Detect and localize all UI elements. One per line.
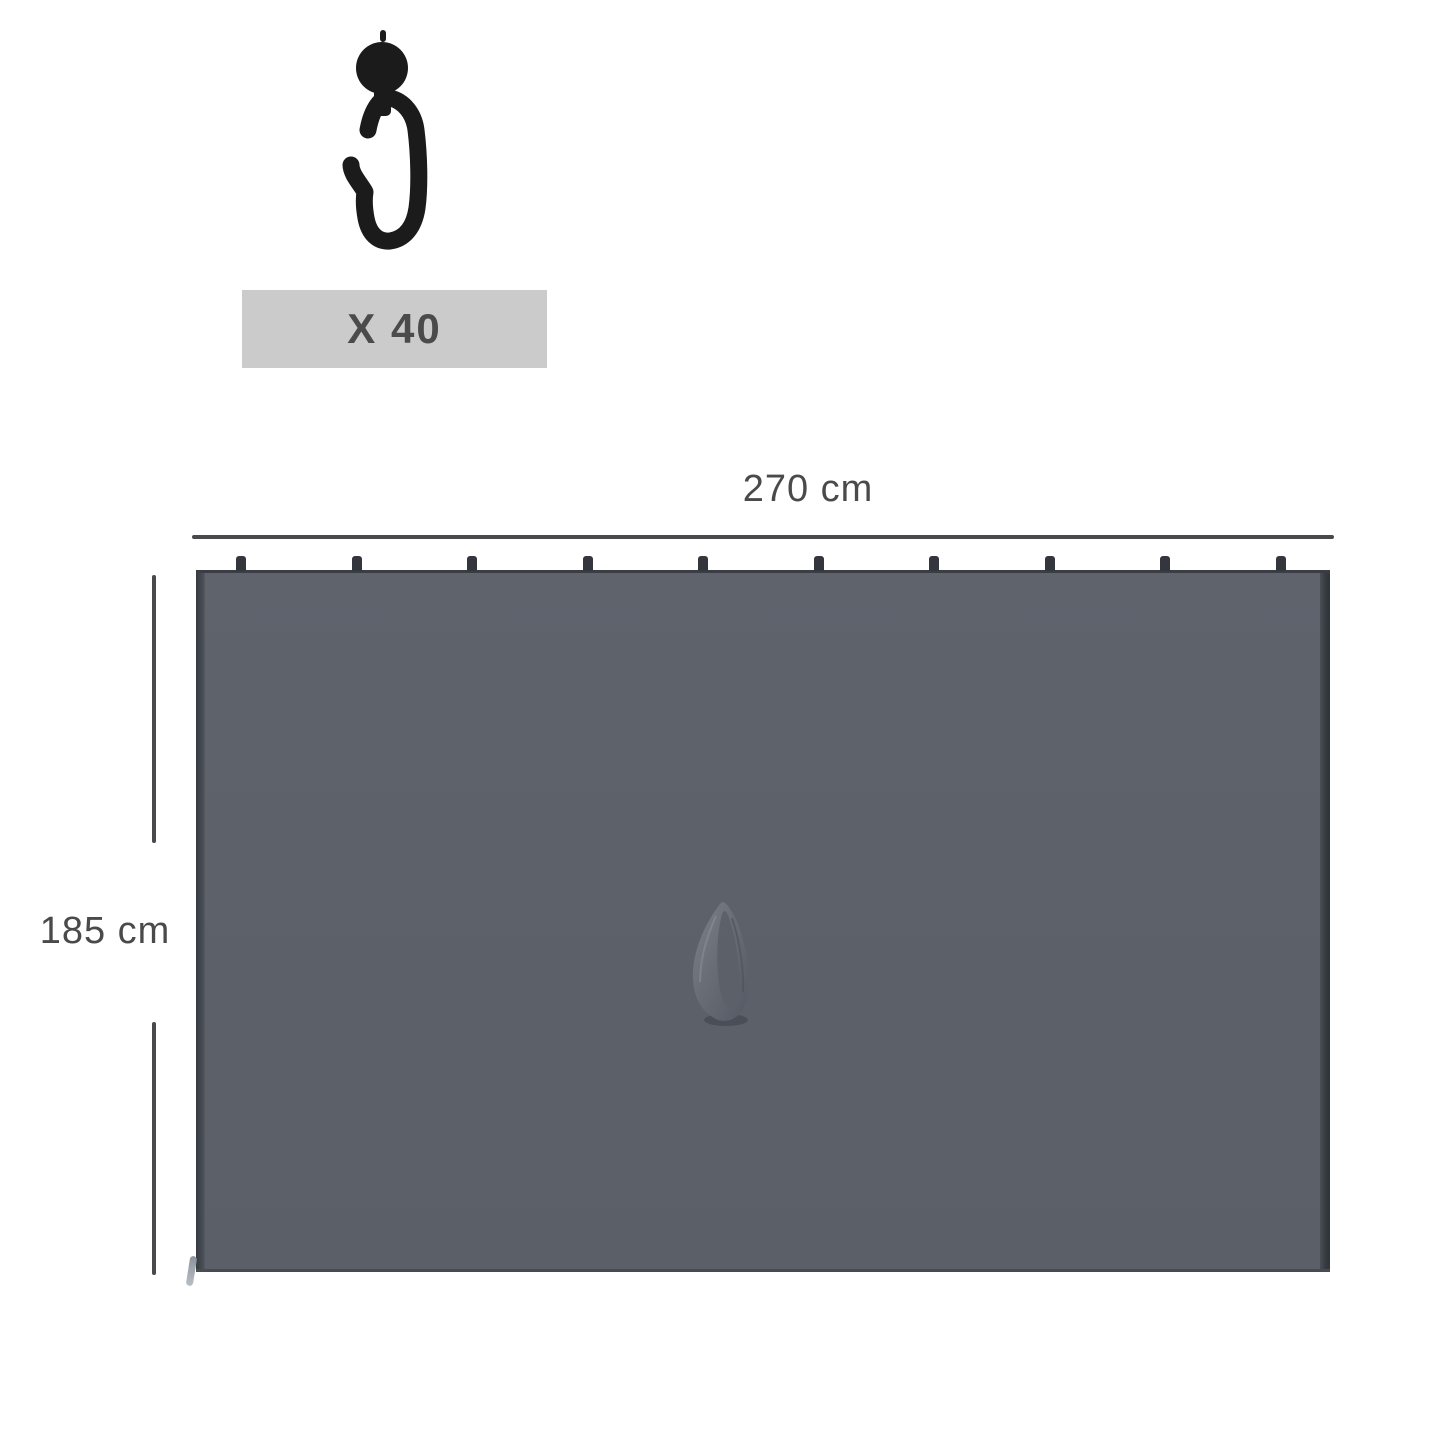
width-dimension-label: 270 cm <box>708 468 908 511</box>
hook-tab <box>467 556 477 571</box>
height-dimension-line-lower <box>152 1022 156 1275</box>
curtain-hook-icon <box>330 26 440 264</box>
hook-tab <box>1045 556 1055 571</box>
height-dimension-label: 185 cm <box>15 910 195 953</box>
hook-tab <box>1276 556 1286 571</box>
fabric-loop-handle-icon <box>688 900 764 1028</box>
curtain-right-edge <box>1320 573 1330 1269</box>
width-dimension-line <box>192 535 1334 539</box>
hook-tab <box>583 556 593 571</box>
hook-tab <box>814 556 824 571</box>
height-dimension-line-upper <box>152 575 156 843</box>
hook-tab <box>236 556 246 571</box>
fabric-loop-handle-svg <box>688 900 764 1028</box>
curtain-hook-svg <box>330 26 440 264</box>
hook-tabs-row <box>236 556 1286 571</box>
hook-tab <box>1160 556 1170 571</box>
curtain-left-edge <box>196 573 205 1269</box>
hook-tab <box>352 556 362 571</box>
quantity-badge: X 40 <box>242 290 547 368</box>
quantity-label: X 40 <box>347 305 441 353</box>
product-dimension-diagram: X 40 270 cm 185 cm <box>0 0 1445 1445</box>
hook-tab <box>698 556 708 571</box>
hook-tab <box>929 556 939 571</box>
